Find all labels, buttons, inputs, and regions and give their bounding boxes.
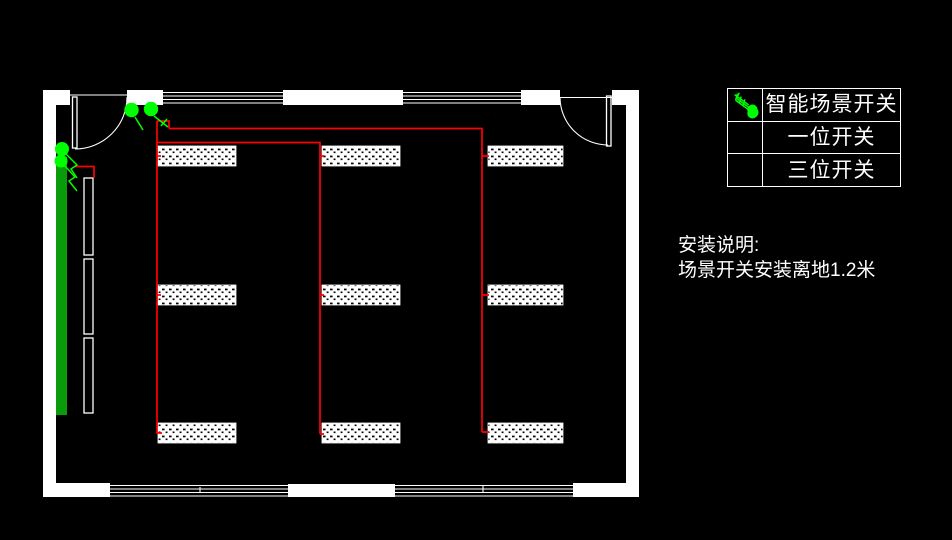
switch-lead [66,154,77,178]
three-gang-switch-icon [728,154,763,186]
wall-pier-top-3 [521,90,560,105]
wiring-circuit [75,121,489,434]
light-fixture [322,423,400,443]
window-bottom-right [395,486,573,497]
switch-devices [55,102,169,191]
installation-notes: 安装说明: 场景开关安装离地1.2米 [678,233,875,283]
window-bottom-left [110,486,288,497]
door-top-left [70,95,127,149]
wall-corner-top-left [43,90,70,105]
cabinet-column [84,178,93,413]
notes-title: 安装说明: [678,233,875,258]
wall-right [626,90,639,497]
switch-lead [135,117,143,130]
wall-pier-top-2 [283,90,403,105]
light-fixtures [158,146,563,443]
wall-corner-bottom-left [43,483,110,497]
legend-label: 智能场景开关 [763,89,900,121]
light-fixture [488,285,563,305]
curtain-bar [56,157,67,415]
light-fixture [322,285,400,305]
light-fixture [322,146,400,166]
wall-pier-top-1 [127,90,163,105]
light-fixture [158,146,236,166]
light-fixture [488,146,563,166]
legend-row-one-gang-switch: 一位开关 [728,121,900,154]
scene-switch-icon [144,102,158,116]
notes-body: 场景开关安装离地1.2米 [678,258,875,283]
window-top-right [403,93,521,104]
legend-row-three-gang-switch: 三位开关 [728,153,900,186]
window-top-left [163,93,283,104]
wire-curtain-feed [75,167,94,179]
one-gang-switch-icon [728,122,763,154]
scene-switch-icon [124,103,138,117]
legend-table: 智能场景开关 一位开关 三位开关 [727,88,901,187]
cad-lighting-plan: 智能场景开关 一位开关 三位开关 [0,0,952,540]
wall-left [43,90,56,497]
legend-label: 三位开关 [763,154,900,186]
wire-run-right [169,129,482,433]
wall-corner-bottom-right [573,483,639,497]
light-fixture [158,285,236,305]
wall-pier-bottom [288,484,395,497]
door-top-right [560,96,612,146]
wall-corner-top-right [612,90,639,105]
light-fixture [488,423,563,443]
light-fixture [158,423,236,443]
legend-label: 一位开关 [763,122,900,154]
